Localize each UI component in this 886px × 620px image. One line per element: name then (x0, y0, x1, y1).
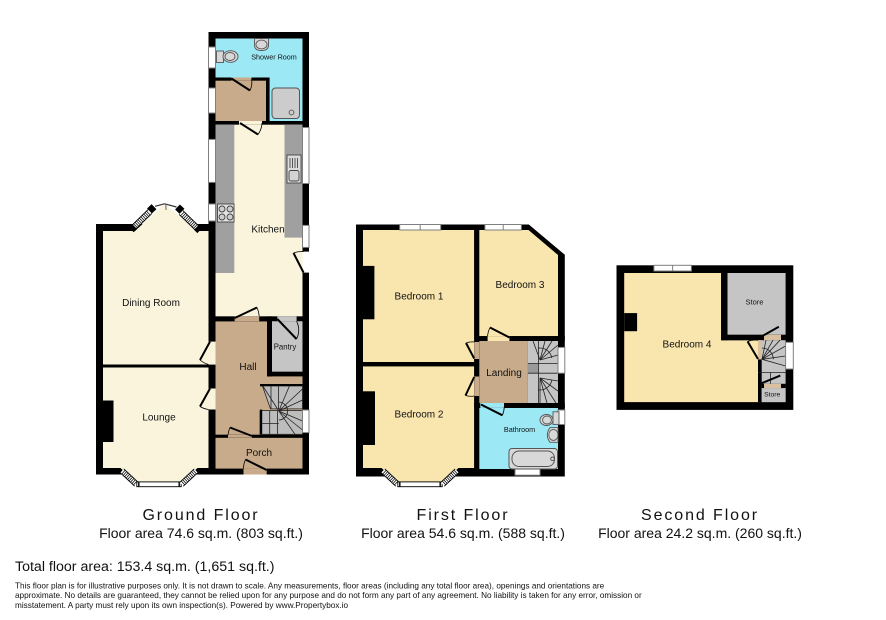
svg-text:Kitchen: Kitchen (251, 225, 284, 236)
svg-text:Landing: Landing (486, 368, 522, 379)
svg-text:Dining Room: Dining Room (122, 298, 180, 309)
svg-text:Bedroom 2: Bedroom 2 (395, 410, 444, 421)
svg-text:misstatement. A party must rel: misstatement. A party must rely upon its… (15, 601, 349, 610)
svg-text:Hall: Hall (239, 362, 256, 373)
svg-text:Store: Store (764, 392, 780, 399)
svg-text:Lounge: Lounge (142, 413, 176, 424)
svg-text:Floor area 74.6 sq.m. (803 sq.: Floor area 74.6 sq.m. (803 sq.ft.) (99, 525, 303, 541)
svg-text:Floor area 24.2 sq.m. (260 sq.: Floor area 24.2 sq.m. (260 sq.ft.) (598, 525, 802, 541)
svg-text:approximate. No details are gu: approximate. No details are guaranteed, … (15, 591, 642, 600)
svg-text:This floor plan is for illustr: This floor plan is for illustrative purp… (15, 581, 605, 590)
svg-text:Bedroom 1: Bedroom 1 (395, 292, 444, 303)
svg-text:First Floor: First Floor (417, 507, 510, 524)
svg-text:Second Floor: Second Floor (641, 507, 759, 524)
svg-text:Bedroom 4: Bedroom 4 (663, 340, 712, 351)
svg-text:Store: Store (746, 298, 764, 307)
svg-text:Floor area 54.6 sq.m. (588 sq.: Floor area 54.6 sq.m. (588 sq.ft.) (361, 525, 565, 541)
svg-text:Bedroom 3: Bedroom 3 (496, 280, 545, 291)
svg-text:Total floor area: 153.4 sq.m.: Total floor area: 153.4 sq.m. (1,651 sq.… (15, 559, 274, 575)
svg-text:Pantry: Pantry (274, 343, 297, 352)
svg-text:Porch: Porch (246, 448, 272, 459)
svg-text:Ground Floor: Ground Floor (142, 507, 259, 524)
svg-text:Shower Room: Shower Room (251, 53, 297, 62)
svg-text:Bathroom: Bathroom (504, 425, 535, 434)
